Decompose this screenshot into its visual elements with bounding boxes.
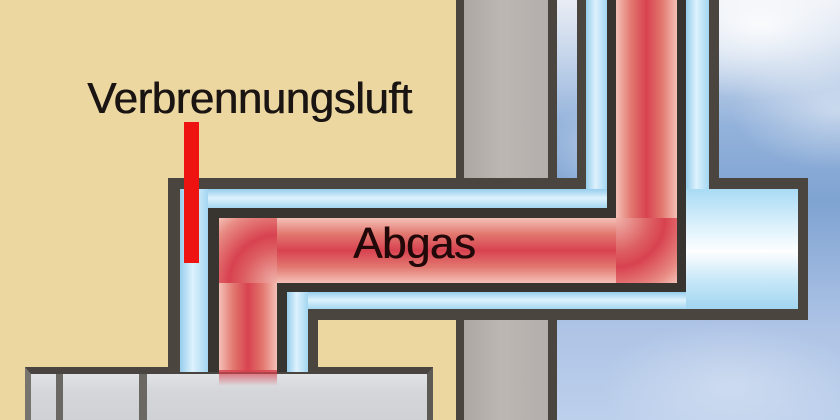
boiler-panel-seam	[139, 374, 147, 420]
boiler-connector-outer-wall-right	[308, 309, 318, 372]
exhaust-elbow-corner-right	[616, 218, 677, 283]
label-exhaust-gas: Abgas	[353, 222, 475, 266]
chimney-wall-upper	[456, 0, 557, 183]
riser-inner-wall-right	[677, 0, 686, 283]
riser-inner-wall-left	[607, 0, 616, 208]
exhaust-fade-into-boiler	[219, 370, 277, 386]
horizontal-pipe-inner-top-border	[208, 208, 616, 218]
exhaust-elbow-corner-left	[219, 218, 277, 283]
boiler-panel-seam	[56, 374, 63, 420]
boiler-connector-exhaust-core	[219, 283, 277, 372]
riser-outer-wall-left	[577, 0, 586, 183]
boiler-connector-inner-wall-right	[277, 283, 287, 372]
air-stub-top-border	[709, 178, 808, 189]
horizontal-pipe-outer-bottom-border	[308, 309, 808, 320]
combustion-air-pointer-line	[184, 122, 199, 263]
horizontal-air-channel-bottom	[287, 292, 686, 309]
horizontal-air-channel-top	[180, 189, 607, 208]
air-stub-end-cap	[798, 178, 808, 320]
riser-air-annulus-right	[686, 0, 709, 189]
horizontal-pipe-inner-bottom-border	[277, 283, 686, 292]
label-combustion-air: Verbrennungsluft	[87, 77, 412, 121]
riser-outer-wall-right	[709, 0, 719, 178]
boiler-connector-air-annulus-right	[287, 292, 308, 372]
air-stub-interior	[686, 189, 798, 309]
boiler-connector-outer-wall-left	[168, 178, 180, 372]
riser-exhaust-core	[616, 0, 677, 218]
horizontal-pipe-outer-top-border	[168, 178, 586, 189]
riser-air-annulus-left	[586, 0, 607, 208]
chimney-wall-lower	[456, 318, 557, 420]
boiler-connector-inner-wall-left	[208, 208, 219, 372]
flue-system-diagram: Verbrennungsluft Abgas	[0, 0, 840, 420]
